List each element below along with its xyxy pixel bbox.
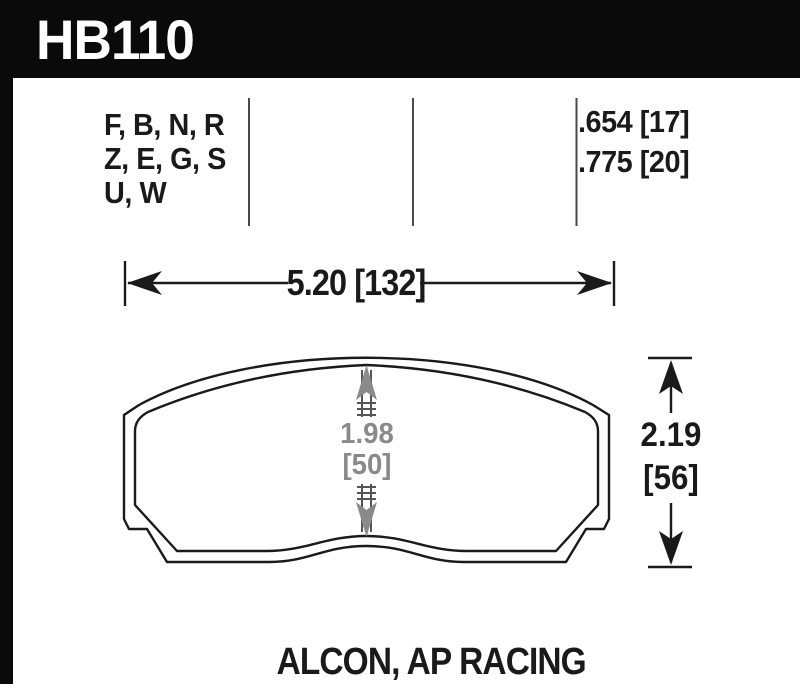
caliper-applications: ALCON, AP RACING <box>277 640 550 685</box>
height-dim-inches: 2.19 <box>625 414 717 457</box>
thickness-line-2: .775 [20] <box>578 142 689 182</box>
compound-line-2: Z, E, G, S <box>104 142 226 176</box>
compound-line-1: F, B, N, R <box>104 108 226 142</box>
spec-table-dividers <box>249 98 577 226</box>
height-dim-label: 2.19 [56] <box>625 414 717 500</box>
compound-codes: F, B, N, R Z, E, G, S U, W <box>104 108 226 210</box>
thickness-line-1: .654 [17] <box>578 102 689 142</box>
width-dim-label: 5.20 [132] <box>257 261 455 304</box>
center-dim-mm: [50] <box>310 450 424 481</box>
center-dim-label: 1.98 [50] <box>310 419 424 481</box>
brake-pad-spec-sheet: HB110 <box>0 0 800 691</box>
compound-line-3: U, W <box>104 176 226 210</box>
center-dim-inches: 1.98 <box>310 419 424 450</box>
height-dim-mm: [56] <box>625 457 717 500</box>
pad-thickness-values: .654 [17] .775 [20] <box>578 102 689 182</box>
